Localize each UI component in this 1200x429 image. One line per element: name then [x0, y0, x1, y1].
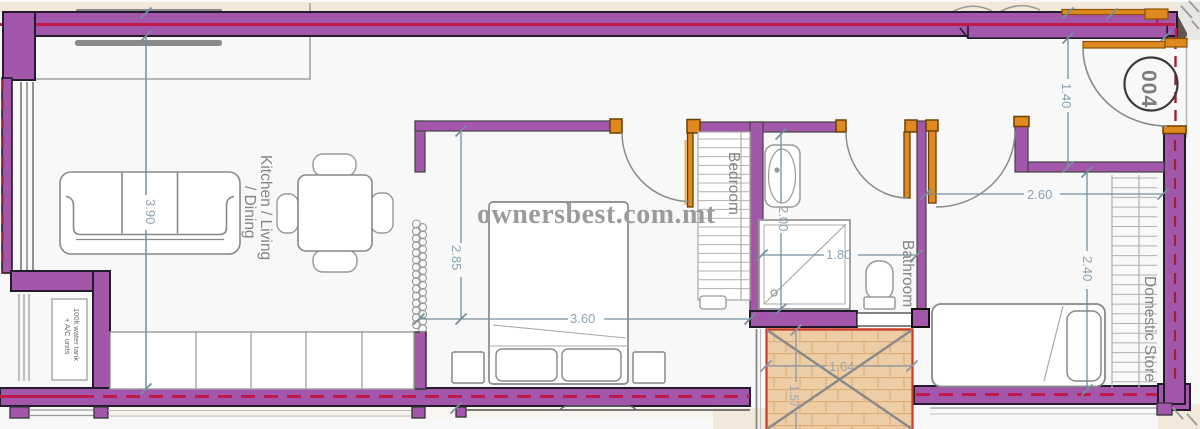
- svg-text:Bathroom: Bathroom: [899, 240, 916, 307]
- svg-text:1.64: 1.64: [829, 359, 854, 374]
- svg-text:1.80: 1.80: [826, 247, 851, 262]
- svg-text:2.40: 2.40: [1080, 256, 1095, 281]
- svg-text:100lt water tank: 100lt water tank: [72, 308, 81, 361]
- svg-text:2.00: 2.00: [776, 206, 791, 231]
- svg-text:+ A/C units: + A/C units: [63, 318, 72, 355]
- svg-text:2.85: 2.85: [449, 245, 464, 270]
- svg-text:Domestic Store: Domestic Store: [1141, 276, 1158, 382]
- svg-text:1.40: 1.40: [1059, 83, 1074, 108]
- svg-text:Kitchen / Living: Kitchen / Living: [257, 155, 274, 260]
- svg-text:1.57: 1.57: [787, 385, 799, 407]
- svg-text:004: 004: [1137, 70, 1160, 108]
- svg-text:ownersbest.com.mt: ownersbest.com.mt: [477, 199, 716, 230]
- svg-text:Bedroom: Bedroom: [725, 152, 742, 215]
- svg-text:3.60: 3.60: [570, 311, 595, 326]
- svg-text:2.60: 2.60: [1027, 187, 1052, 202]
- svg-text:3.90: 3.90: [143, 199, 158, 224]
- svg-text:/ Dining: / Dining: [241, 186, 258, 239]
